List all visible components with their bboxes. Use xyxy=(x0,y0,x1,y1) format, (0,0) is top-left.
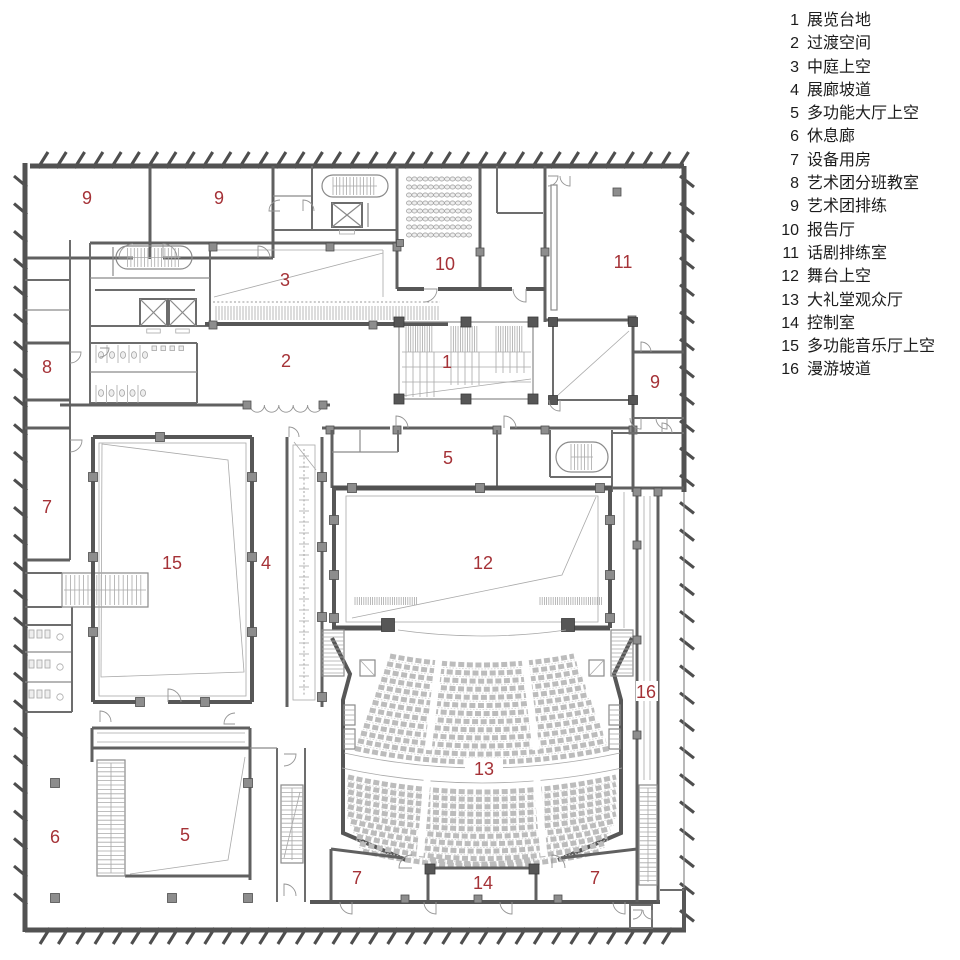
legend-item-6: 6休息廊 xyxy=(781,122,956,145)
legend-number: 2 xyxy=(781,35,799,53)
room-label-1: 1 xyxy=(442,352,452,372)
legend-number: 15 xyxy=(781,338,799,356)
room-label-7: 7 xyxy=(352,868,362,888)
legend-item-7: 7设备用房 xyxy=(781,146,956,169)
legend-item-14: 14控制室 xyxy=(781,309,956,332)
room-label-3: 3 xyxy=(280,270,290,290)
room-label-16: 16 xyxy=(636,682,656,702)
legend-label: 大礼堂观众厅 xyxy=(807,286,903,310)
legend-label: 展廊坡道 xyxy=(807,76,871,100)
legend-item-5: 5多功能大厅上空 xyxy=(781,99,956,122)
legend-number: 6 xyxy=(781,128,799,146)
room-label-2: 2 xyxy=(281,351,291,371)
room-label-4: 4 xyxy=(261,553,271,573)
room-label-15: 15 xyxy=(162,553,182,573)
legend-item-11: 11话剧排练室 xyxy=(781,239,956,262)
room-label-13: 13 xyxy=(474,759,494,779)
legend-label: 设备用房 xyxy=(807,146,871,170)
legend-number: 4 xyxy=(781,82,799,100)
legend-label: 话剧排练室 xyxy=(807,239,887,263)
legend-label: 控制室 xyxy=(807,309,855,333)
legend-label: 展览台地 xyxy=(807,6,871,30)
legend-number: 1 xyxy=(781,12,799,30)
legend-number: 12 xyxy=(781,268,799,286)
legend-item-12: 12舞台上空 xyxy=(781,262,956,285)
legend-label: 中庭上空 xyxy=(807,53,871,77)
legend-number: 10 xyxy=(781,222,799,240)
legend-item-8: 8艺术团分班教室 xyxy=(781,169,956,192)
room-label-9: 9 xyxy=(214,188,224,208)
legend-number: 11 xyxy=(781,245,799,263)
room-label-7: 7 xyxy=(42,497,52,517)
legend-label: 艺术团分班教室 xyxy=(807,169,919,193)
legend-number: 13 xyxy=(781,292,799,310)
legend-label: 过渡空间 xyxy=(807,29,871,53)
legend-label: 漫游坡道 xyxy=(807,355,871,379)
legend-label: 舞台上空 xyxy=(807,262,871,286)
legend-label: 多功能音乐厅上空 xyxy=(807,332,935,356)
legend-label: 多功能大厅上空 xyxy=(807,99,919,123)
legend-item-2: 2过渡空间 xyxy=(781,29,956,52)
room-label-10: 10 xyxy=(435,254,455,274)
legend-item-9: 9艺术团排练 xyxy=(781,192,956,215)
legend-number: 16 xyxy=(781,361,799,379)
legend-number: 8 xyxy=(781,175,799,193)
legend-number: 3 xyxy=(781,59,799,77)
room-label-11: 11 xyxy=(614,252,633,272)
legend-item-15: 15多功能音乐厅上空 xyxy=(781,332,956,355)
room-label-9: 9 xyxy=(650,372,660,392)
room-label-5: 5 xyxy=(180,825,190,845)
floor-plan-page: 9910113218957154121613657147 1展览台地2过渡空间3… xyxy=(0,0,960,960)
legend-item-4: 4展廊坡道 xyxy=(781,76,956,99)
room-label-8: 8 xyxy=(42,357,52,377)
room-label-5: 5 xyxy=(443,448,453,468)
legend-item-1: 1展览台地 xyxy=(781,6,956,29)
legend: 1展览台地2过渡空间3中庭上空4展廊坡道5多功能大厅上空6休息廊7设备用房8艺术… xyxy=(781,6,956,379)
room-label-9: 9 xyxy=(82,188,92,208)
legend-item-3: 3中庭上空 xyxy=(781,53,956,76)
room-label-12: 12 xyxy=(473,553,493,573)
legend-number: 14 xyxy=(781,315,799,333)
room-label-14: 14 xyxy=(473,873,493,893)
room-label-7: 7 xyxy=(590,868,600,888)
legend-item-13: 13大礼堂观众厅 xyxy=(781,286,956,309)
legend-number: 9 xyxy=(781,198,799,216)
legend-label: 休息廊 xyxy=(807,122,855,146)
legend-item-16: 16漫游坡道 xyxy=(781,355,956,378)
legend-number: 7 xyxy=(781,152,799,170)
legend-number: 5 xyxy=(781,105,799,123)
room-label-6: 6 xyxy=(50,827,60,847)
legend-label: 报告厅 xyxy=(807,216,855,240)
legend-label: 艺术团排练 xyxy=(807,192,887,216)
legend-item-10: 10报告厅 xyxy=(781,216,956,239)
